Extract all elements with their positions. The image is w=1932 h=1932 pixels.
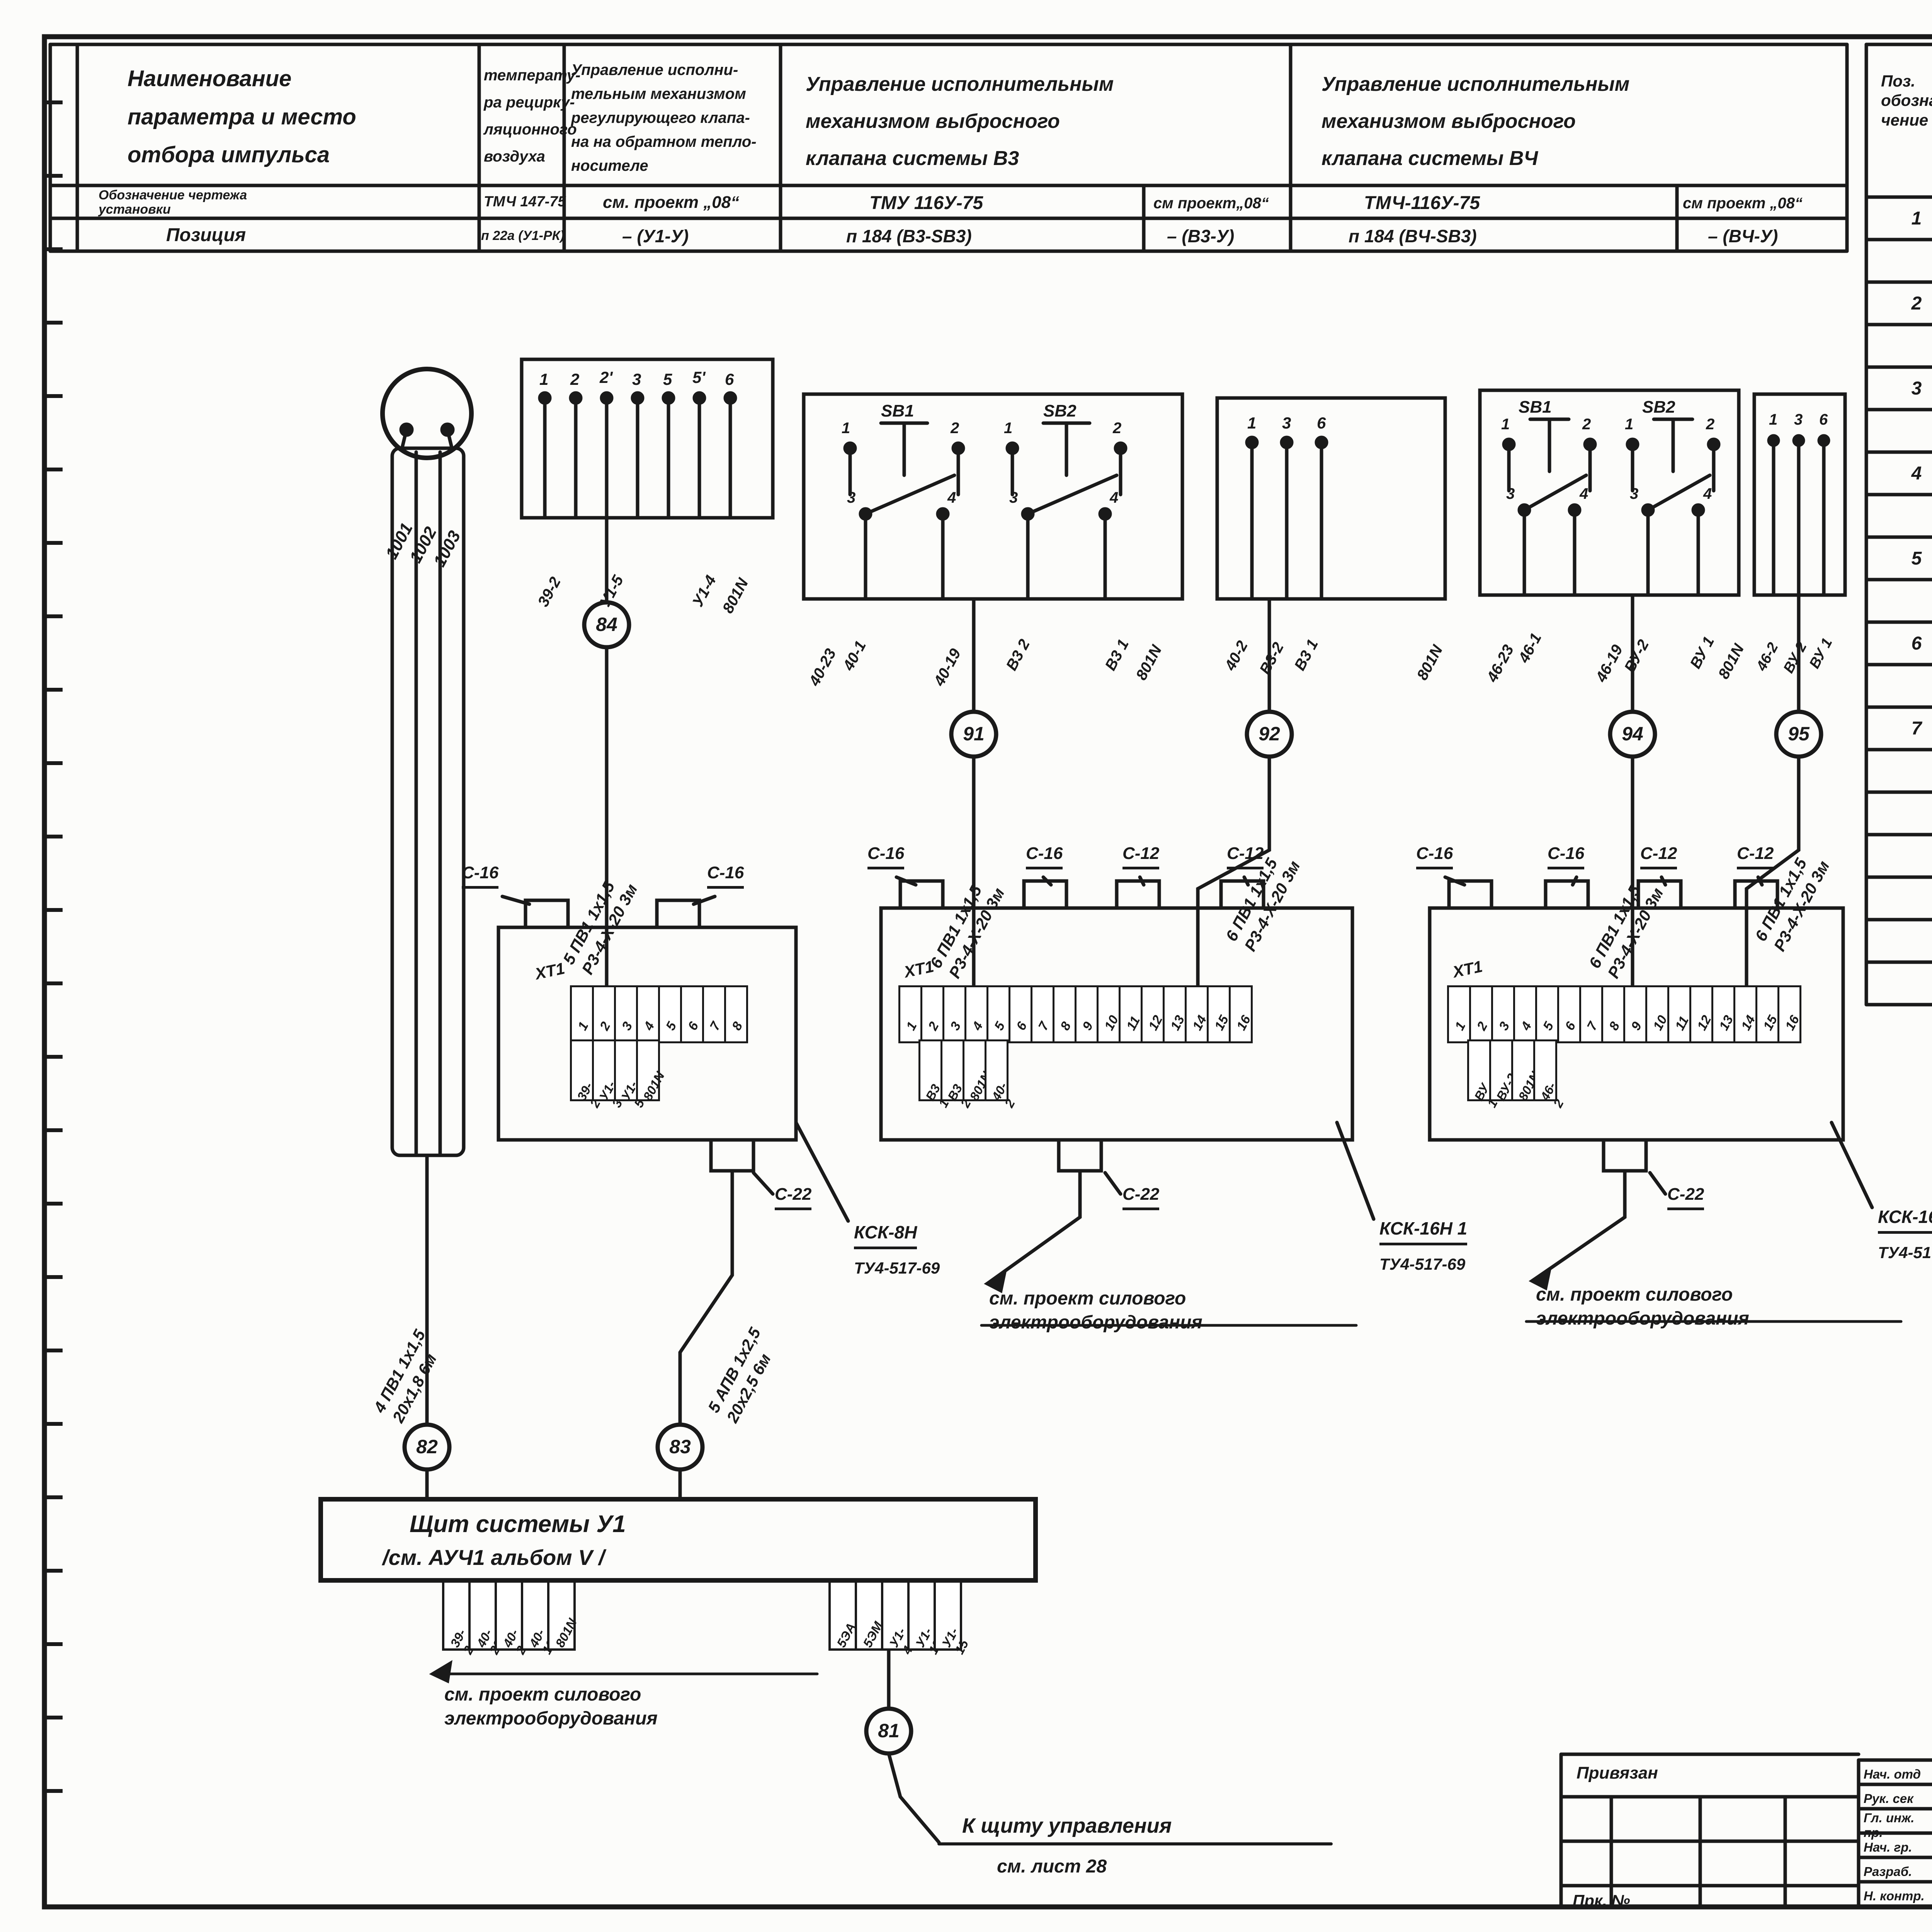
wire-tag-cell: У1-3 (592, 1039, 616, 1101)
table-row: ТУ 36 1753-75 1 (1866, 240, 1932, 282)
connector-label-c12: С-12 (1640, 842, 1677, 869)
wire-tag-cell: 801N (1511, 1039, 1535, 1101)
staff-role: Нач. отд (1861, 1767, 1932, 1782)
part-pos (1866, 325, 1932, 367)
terminal-number: 4 (1110, 488, 1118, 508)
to-control-label: К щиту управления (962, 1812, 1172, 1839)
part-pos: 4 (1866, 452, 1932, 495)
drawing-sheet: { "header_table": { "param_title": "Наим… (0, 0, 1932, 1932)
node-circle-95: 95 (1776, 723, 1821, 745)
terminal-cell: 8 (1601, 985, 1625, 1043)
table-row: ГОСТ 10704-76 6 м (1866, 665, 1932, 707)
connector-label-c16: С-16 (867, 842, 904, 869)
connector-label-c16: С-16 (1026, 842, 1063, 869)
terminal-cell: 11 (1667, 985, 1691, 1043)
terminal-number: 2 (951, 418, 959, 438)
terminal-number: 3 (1794, 410, 1803, 430)
terminal-cell: 6 (1557, 985, 1581, 1043)
terminal-cell: 11 (1119, 985, 1143, 1043)
connector-label-c22: С-22 (1122, 1183, 1159, 1210)
terminal-number: 3 (1630, 484, 1638, 504)
kck16-2-wire-tags: ВУ 1ВУ-2801N46-2 (1469, 1039, 1557, 1101)
terminal-number: 1 (539, 369, 548, 390)
row3-label: Позиция (166, 223, 246, 247)
terminal-cell: 2 (1469, 985, 1493, 1043)
terminal-number: 5' (692, 367, 705, 388)
col-v3-doc2: см проект„08“ (1153, 193, 1269, 213)
wire-tag-cell: У1-4 (881, 1580, 910, 1651)
row2-label: Обозначение чертежа установки (99, 188, 247, 217)
terminal-cell: 4 (1513, 985, 1537, 1043)
power-project-note: см. проект силового электрооборудования (1536, 1283, 1749, 1331)
kck16-1-wire-tags: В3 1В3 2801N40-2 (920, 1039, 1009, 1101)
terminal-cell: 4 (636, 985, 660, 1043)
terminal-cell: 2 (592, 985, 616, 1043)
terminal-number: 2 (1706, 414, 1714, 434)
param-title: Наименование параметра и место отбора им… (128, 60, 356, 174)
table-row: ТУ 22 3988-77 15 м (1866, 580, 1932, 622)
terminal-cell: 3 (942, 985, 966, 1043)
switch-label: SB1 (881, 400, 914, 422)
terminal-number: 2' (600, 367, 612, 388)
terminal-number: 3 (1009, 488, 1018, 508)
col-reg-title: Управление исполни- тельным механизмом р… (571, 58, 757, 178)
shield-box-subtitle: /см. АУЧ1 альбом V / (383, 1544, 605, 1572)
shield-box-title: Щит системы У1 (410, 1509, 626, 1540)
terminal-cell: 3 (1491, 985, 1515, 1043)
node-circle-83: 83 (657, 1435, 703, 1458)
attach-label: Привязан (1577, 1762, 1658, 1784)
col-v4-doc2: см проект „08“ (1683, 193, 1803, 213)
terminal-cell: 9 (1623, 985, 1647, 1043)
terminal-number: 4 (1580, 484, 1588, 504)
staff-role: Разраб. (1861, 1864, 1932, 1879)
part-pos: 1 (1866, 197, 1932, 240)
staff-row: Рук. сек Рабкин (1861, 1786, 1932, 1811)
terminal-number: 1 (1247, 413, 1256, 434)
table-row: 3 Провод 380В с медной жилой (1866, 367, 1932, 410)
terminal-cell: 12 (1141, 985, 1165, 1043)
terminal-number: 2 (1113, 418, 1121, 438)
staff-row: Гл. инж. пр. Комаров (1861, 1811, 1932, 1835)
terminal-number: 3 (1282, 413, 1291, 434)
col-v4-title: Управление исполнительным механизмом выб… (1321, 66, 1629, 177)
terminal-cell: 3 (614, 985, 638, 1043)
prk-label: Прк. № (1573, 1890, 1630, 1912)
connector-label-c16: С-16 (1416, 842, 1453, 869)
kck16-1-terminal-strip: 12345678910111213141516 (900, 985, 1253, 1043)
box-tu-label: ТУ4-517-69 (1878, 1242, 1932, 1264)
staff-role: Рук. сек (1861, 1791, 1932, 1806)
power-project-note: см. проект силового электрооборудования (989, 1287, 1202, 1335)
part-pos (1866, 240, 1932, 282)
wire-tag-cell: У1-15 (934, 1580, 962, 1651)
wire-tag-cell: 40-19 (521, 1580, 549, 1651)
staff-role: Нач. гр. (1861, 1840, 1932, 1855)
terminal-cell: 14 (1733, 985, 1757, 1043)
terminal-number: 1 (1625, 414, 1633, 434)
terminal-cell: 15 (1207, 985, 1231, 1043)
terminal-cell: 15 (1755, 985, 1779, 1043)
left-frame-binding-marks (46, 100, 63, 1862)
wire-tag-cell: 39-2 (442, 1580, 471, 1651)
terminal-number: 2 (1582, 414, 1591, 434)
terminal-cell: 2 (920, 985, 944, 1043)
col-v3-pos2: – (В3-У) (1167, 225, 1234, 248)
terminal-number: 6 (1819, 410, 1828, 430)
terminal-cell: 5 (1535, 985, 1559, 1043)
shield-right-strip: 5ЭА5ЭМУ1-4У1-13У1-15 (831, 1580, 962, 1651)
terminal-number: 4 (1703, 484, 1712, 504)
terminal-number: 5 (663, 369, 672, 390)
kck8-wire-tags: 39-2У1-3У1-5801N (572, 1039, 660, 1101)
node-circle-94: 94 (1610, 723, 1655, 745)
connector-label-c16: С-16 (707, 862, 744, 889)
staff-signature-rows: Нач. отд Солдатов Рук. сек Рабкин Гл. ин… (1861, 1762, 1932, 1908)
terminal-cell: 10 (1645, 985, 1669, 1043)
terminal-cell: 7 (702, 985, 726, 1043)
col-v4-pos1: п 184 (ВЧ-SВ3) (1349, 225, 1477, 248)
terminal-cell: 7 (1031, 985, 1054, 1043)
staff-row: Н. контр. Шор (1861, 1884, 1932, 1908)
node-circle-92: 92 (1247, 723, 1292, 745)
staff-row: Разраб. Новачик (1861, 1859, 1932, 1884)
terminal-cell: 8 (724, 985, 748, 1043)
col-temp-doc: ТМЧ 147-75 (484, 192, 566, 211)
terminal-number: 1 (1769, 410, 1777, 430)
terminal-cell: 16 (1777, 985, 1801, 1043)
part-pos: 7 (1866, 707, 1932, 750)
staff-row: Нач. отд Солдатов (1861, 1762, 1932, 1786)
wire-tag-cell: У1-13 (907, 1580, 936, 1651)
node-circle-84: 84 (584, 613, 629, 636)
col-reg-doc: см. проект „08“ (603, 191, 739, 213)
wire-tag-cell: 5ЭМ (855, 1580, 883, 1651)
wire-tag-cell: 5ЭА (828, 1580, 857, 1651)
table-row: 7 Труба винипластовая 20х2,5 (1866, 707, 1932, 750)
terminal-cell: 14 (1185, 985, 1209, 1043)
table-row: ПВ1 1х1,5 ГОСТ 6323-79 111 м (1866, 410, 1932, 452)
terminal-number: 3 (1506, 484, 1515, 504)
terminal-number: 1 (1501, 414, 1510, 434)
connector-label-c12: С-12 (1227, 842, 1264, 869)
connector-label-c16: С-16 (462, 862, 498, 889)
col-v4-pos2: – (ВЧ-У) (1708, 225, 1778, 248)
terminal-number: 3 (847, 488, 855, 508)
wire-tag-cell: ВУ-2 (1489, 1039, 1513, 1101)
terminal-cell: 8 (1053, 985, 1077, 1043)
kck16-2-terminal-strip: 12345678910111213141516 (1449, 985, 1801, 1043)
col-v4-doc1: ТМЧ-116У-75 (1364, 191, 1480, 215)
connector-label-c12: С-12 (1737, 842, 1774, 869)
switch-label: SB1 (1519, 396, 1552, 418)
part-pos: 5 (1866, 537, 1932, 580)
terminal-cell: 12 (1689, 985, 1713, 1043)
wire-tag-cell: В3 1 (918, 1039, 942, 1101)
terminal-cell: 13 (1711, 985, 1735, 1043)
wire-tag-cell: ВУ 1 (1467, 1039, 1491, 1101)
terminal-number: 1 (1004, 418, 1012, 438)
wire-tag-cell: В3 2 (940, 1039, 964, 1101)
terminal-number: 1 (842, 418, 850, 438)
part-pos (1866, 665, 1932, 707)
terminal-cell: 16 (1229, 985, 1253, 1043)
col-reg-pos: – (У1-У) (622, 225, 689, 248)
parts-rows: 1 Коробка соединительная КСК-8 ТУ 36 175… (1866, 197, 1932, 792)
terminal-number: 3 (632, 369, 641, 390)
table-row: 1 Коробка соединительная КСК-8 (1866, 197, 1932, 240)
part-pos: 6 (1866, 622, 1932, 665)
terminal-cell: 1 (898, 985, 922, 1043)
terminal-cell: 6 (680, 985, 704, 1043)
terminal-cell: 7 (1579, 985, 1603, 1043)
staff-role: Н. контр. (1861, 1889, 1932, 1903)
col-temp-title: температу- ра рецирку- ляционного воздух… (484, 62, 580, 170)
terminal-cell: 10 (1097, 985, 1121, 1043)
staff-role: Гл. инж. пр. (1861, 1811, 1932, 1840)
terminal-cell: 1 (570, 985, 594, 1043)
table-row: 5 Металлорукав Р3-Ц-Х-20 (1866, 537, 1932, 580)
box-label-kck16-2: КСК-16Н 2 (1878, 1206, 1932, 1234)
col-v3-pos1: п 184 (В3-SВ3) (846, 225, 972, 248)
connector-label-c22: С-22 (1667, 1183, 1704, 1210)
part-pos: 3 (1866, 367, 1932, 410)
box-tu-label: ТУ4-517-69 (854, 1258, 940, 1279)
terminal-cell: 1 (1447, 985, 1471, 1043)
power-project-note: см. проект силового электрооборудования (444, 1683, 658, 1731)
switch-label: SB2 (1642, 396, 1675, 418)
wire-tag-cell: 801N (547, 1580, 576, 1651)
part-pos (1866, 410, 1932, 452)
part-pos (1866, 495, 1932, 537)
node-circle-91: 91 (951, 723, 997, 745)
part-pos: 2 (1866, 282, 1932, 325)
box-tu-label: ТУ4-517-69 (1379, 1254, 1465, 1275)
wire-tag-cell: 39-2 (570, 1039, 594, 1101)
table-row: 6 Труба электросварная 20х1,8 (1866, 622, 1932, 665)
table-row: 2 Коробка соединительная КСК-16 (1866, 282, 1932, 325)
wire-tag-cell: 40-23 (468, 1580, 497, 1651)
connector-label-c22: С-22 (775, 1183, 811, 1210)
terminal-number: 6 (1317, 413, 1326, 434)
wire-tag-cell: 801N (963, 1039, 986, 1101)
table-row: ТУ 36 1753-75 2 (1866, 325, 1932, 367)
col-temp-pos: п 22а (У1-РК) (481, 227, 565, 244)
shield-left-strip: 39-240-2340-240-19801N (444, 1580, 576, 1651)
terminal-cell: 9 (1075, 985, 1099, 1043)
part-pos (1866, 580, 1932, 622)
switch-label: SB2 (1043, 400, 1077, 422)
to-control-sheet-ref: см. лист 28 (997, 1855, 1107, 1879)
wire-tag-cell: 40-2 (495, 1580, 523, 1651)
connector-label-c16: С-16 (1548, 842, 1584, 869)
terminal-cell: 5 (658, 985, 682, 1043)
col-v3-doc1: ТМУ 116У-75 (869, 191, 983, 215)
terminal-cell: 5 (986, 985, 1010, 1043)
node-circle-82: 82 (404, 1435, 450, 1458)
wire-tag-cell: У1-5 (614, 1039, 638, 1101)
terminal-cell: 13 (1163, 985, 1187, 1043)
part-pos (1866, 750, 1932, 792)
terminal-number: 6 (725, 369, 734, 390)
kck8-terminal-strip: 12345678 (572, 985, 748, 1043)
box-label-kck8: КСК-8Н (854, 1221, 917, 1249)
connector-label-c12: С-12 (1122, 842, 1159, 869)
terminal-number: 2 (570, 369, 579, 390)
node-circle-81: 81 (866, 1719, 912, 1742)
col-v3-title: Управление исполнительным механизмом выб… (806, 66, 1114, 177)
terminal-cell: 4 (964, 985, 988, 1043)
box-label-kck16-1: КСК-16Н 1 (1379, 1217, 1467, 1245)
wire-tag-cell: 40-2 (985, 1039, 1009, 1101)
wire-tag-cell: 46-2 (1533, 1039, 1557, 1101)
terminal-number: 4 (947, 488, 956, 508)
terminal-cell: 6 (1009, 985, 1032, 1043)
wire-tag-cell: 801N (636, 1039, 660, 1101)
table-row: ТУ 6 05 1573-75 6 м (1866, 750, 1932, 792)
table-row: 4 Провод 380В с алюминиевой жилой (1866, 452, 1932, 495)
parts-h-pos: Поз. обозна- чение (1881, 71, 1932, 130)
table-row: АПВ 1х2,5 ГОСТ 6323-79 30 м (1866, 495, 1932, 537)
